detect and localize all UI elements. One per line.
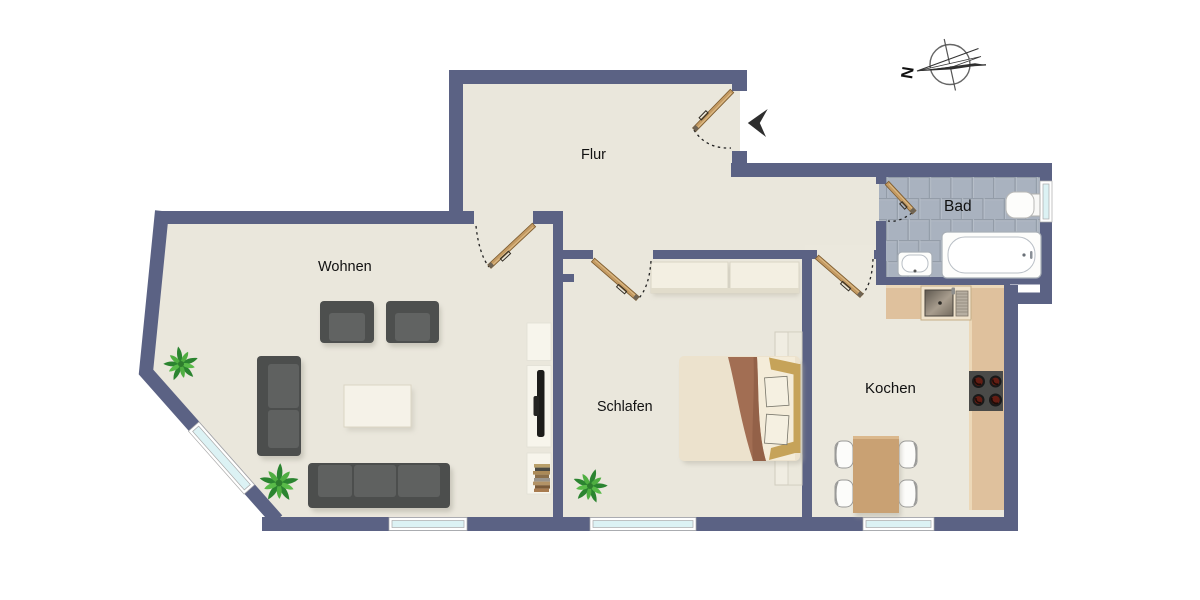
svg-text:Bad: Bad — [944, 198, 972, 215]
svg-text:Flur: Flur — [581, 147, 606, 163]
svg-text:N: N — [897, 65, 917, 80]
svg-text:Wohnen: Wohnen — [318, 259, 372, 275]
svg-text:Kochen: Kochen — [865, 380, 916, 397]
svg-text:Schlafen: Schlafen — [597, 399, 653, 415]
